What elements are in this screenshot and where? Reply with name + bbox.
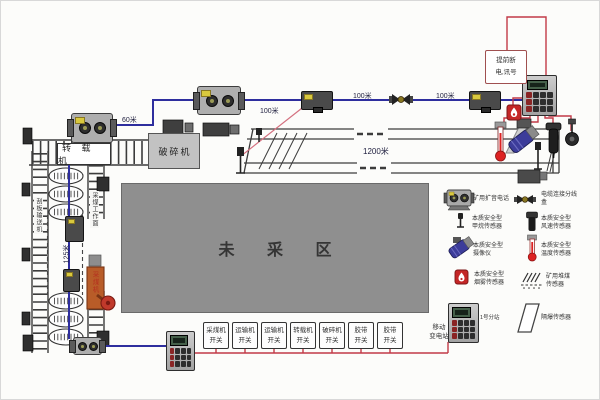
mount-bracket (193, 92, 200, 110)
switch-sublabel: 开关 (262, 336, 286, 346)
line-device-2 (469, 91, 501, 110)
legend-line: 风速传感器 (541, 223, 571, 231)
cable-gland (481, 107, 491, 113)
signal-note-line1: 提前断 (486, 55, 526, 67)
switch-label: 胶带 (349, 326, 373, 336)
switch-sublabel: 开关 (233, 336, 257, 346)
legend-line: 烟雾传感器 (474, 279, 504, 287)
camera (507, 119, 539, 154)
switch-label: 运输机 (233, 326, 257, 336)
legend-line: 摄像仪 (473, 250, 503, 258)
mount-bracket (69, 340, 76, 353)
speaker-icon (78, 342, 87, 351)
distance-100m-3: 100米 (436, 91, 455, 101)
switch-sublabel: 开关 (349, 336, 373, 346)
legend-label-cable-junction: 电缆连接分线 盒 (541, 191, 577, 207)
legend-temperature-sensor-icon (528, 235, 537, 261)
station-1-label: 1号分站 (480, 315, 500, 322)
mount-bracket (110, 119, 117, 137)
device-tag (75, 117, 85, 124)
face-cable-device-2 (63, 269, 80, 292)
legend-label-camera: 本质安全型 摄像仪 (473, 242, 503, 258)
switch-crusher: 破碎机 开关 (319, 322, 345, 349)
switch-sublabel: 开关 (204, 336, 228, 346)
screen-sensor-symbol (518, 304, 539, 332)
switch-shearer: 采煤机 开关 (203, 322, 229, 349)
switch-label: 采煤机 (204, 326, 228, 336)
speaker-icon (94, 122, 106, 134)
belt-end-sensor (534, 142, 542, 169)
smoke-sensor-alarm (507, 105, 521, 120)
left-face-ladder (32, 151, 48, 353)
mount-bracket (67, 119, 74, 137)
switch-conveyor-2: 运输机 开关 (261, 322, 287, 349)
unmined-area: 未 采 区 (121, 183, 429, 313)
line-device-1 (301, 91, 333, 110)
speaker-phone-1 (71, 113, 113, 143)
legend-label-smoke: 本质安全型 烟雾传感器 (474, 271, 504, 287)
legend-line: 温度传感器 (541, 250, 571, 258)
switch-belt-1: 胶带 开关 (348, 322, 374, 349)
mine-monitoring-diagram: 未 采 区 转 载 机 破碎机 采煤机 刮板输送机 采煤工作面 60米 100米… (0, 0, 600, 400)
switch-label: 胶带 (378, 326, 402, 336)
legend-wind-speed-sensor-icon (527, 212, 538, 231)
legend-label-methane: 本质安全型 甲烷传感器 (472, 215, 502, 231)
distance-125m: 125米 (61, 245, 71, 264)
legend-label-temperature: 本质安全型 温度传感器 (541, 242, 571, 258)
speaker-icon (222, 95, 234, 107)
substation-screen (527, 80, 548, 91)
legend-line: 本质安全型 (474, 271, 504, 279)
switch-sublabel: 开关 (378, 336, 402, 346)
crusher: 破碎机 (148, 133, 200, 169)
device-tag (66, 272, 73, 277)
legend-camera-icon (448, 236, 475, 259)
distance-1200m: 1200米 (363, 146, 389, 157)
switch-label: 运输机 (262, 326, 286, 336)
distance-100m-2: 100米 (353, 91, 372, 101)
legend-line: 盒 (541, 199, 577, 207)
switch-sublabel: 开关 (320, 336, 344, 346)
mobile-substation-line1: 移动 (422, 323, 456, 332)
substation-screen (452, 307, 471, 317)
temperature-sensor (495, 122, 506, 161)
legend-line: 电缆连接分线 (541, 191, 577, 199)
cable-gland (313, 107, 323, 113)
switch-transfer: 转载机 开关 (290, 322, 316, 349)
screen-sensor-label: 隔爆传感器 (541, 314, 571, 322)
legend-speaker-phone-icon (444, 190, 474, 210)
mobile-substation-line2: 变电站 (422, 332, 456, 341)
switch-sublabel: 开关 (291, 336, 315, 346)
cable-junction (389, 94, 413, 105)
speaker-phone-face (73, 337, 102, 355)
distance-100m-1: 100米 (260, 106, 279, 116)
speaker-icon (89, 342, 98, 351)
face-cable-device-1 (65, 216, 84, 242)
face-ladder-label: 采煤工作面 (90, 191, 99, 228)
legend-label-wind-speed: 本质安全型 风速传感器 (541, 215, 571, 231)
device-tag (68, 219, 75, 224)
belt-drive-motor (518, 170, 547, 183)
device-tag (472, 94, 481, 100)
legend-line: 本质安全型 (473, 242, 503, 250)
left-ladder-label: 刮板输送机 (34, 197, 43, 234)
legend-coal-pile-sensor-icon (521, 273, 542, 289)
switch-label: 转载机 (291, 326, 315, 336)
mount-bracket (99, 340, 106, 353)
substation-screen (170, 335, 188, 345)
switch-conveyor-1: 运输机 开关 (232, 322, 258, 349)
legend-label-coal-pile: 矿用堆煤 传感器 (546, 273, 570, 289)
shearer-label: 采煤机 (89, 270, 99, 295)
monitoring-substation-bottom (166, 331, 195, 371)
legend-smoke-sensor-icon (455, 270, 468, 284)
legend-label-speaker-phone: 矿用扩音电话 (473, 195, 509, 203)
legend-methane-sensor-icon (457, 213, 464, 227)
speaker-phone-2 (197, 86, 241, 115)
substation-keys (170, 348, 192, 367)
legend-line: 传感器 (546, 281, 570, 289)
signal-note: 提前断 电,讯号 (485, 50, 527, 84)
substation-keys (526, 92, 552, 112)
wind-speed-sensor (566, 119, 579, 146)
device-tag (201, 90, 211, 97)
legend-line: 本质安全型 (541, 242, 571, 250)
mobile-substation-label: 移动 变电站 (422, 323, 456, 342)
legend-cable-junction-icon (514, 195, 536, 204)
mount-bracket (238, 92, 245, 110)
legend-line: 甲烷传感器 (472, 223, 502, 231)
transfer-machine-label: 转 载 机 (57, 143, 111, 165)
device-tag (304, 94, 313, 100)
monitoring-substation-top (522, 75, 557, 116)
distance-60m: 60米 (122, 115, 137, 125)
signal-note-line2: 电,讯号 (486, 67, 526, 79)
legend-line: 本质安全型 (541, 215, 571, 223)
legend-line: 本质安全型 (472, 215, 502, 223)
legend-line: 矿用堆煤 (546, 273, 570, 281)
switch-label: 破碎机 (320, 326, 344, 336)
switch-belt-2: 胶带 开关 (377, 322, 403, 349)
